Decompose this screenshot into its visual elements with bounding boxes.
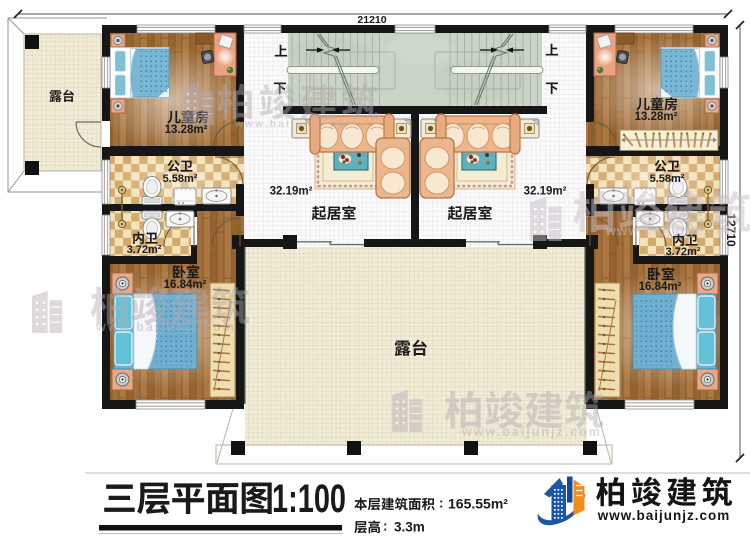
svg-text:16.84m²: 16.84m² [639,281,682,293]
svg-text:5.58m²: 5.58m² [163,173,198,185]
svg-text:www.baijunjz.com: www.baijunjz.com [234,118,358,130]
svg-text:www.baijunjz.com: www.baijunjz.com [597,508,731,523]
svg-text:5.58m²: 5.58m² [650,173,685,185]
svg-text:13.28m²: 13.28m² [635,111,678,123]
svg-text:16.84m²: 16.84m² [164,279,207,291]
svg-text:3.72m²: 3.72m² [666,246,701,258]
svg-text:3.72m²: 3.72m² [127,244,162,256]
svg-text:32.19m²: 32.19m² [524,186,567,198]
svg-text:21210: 21210 [357,14,386,26]
svg-text:165.55m²: 165.55m² [448,496,508,512]
svg-text:1:100: 1:100 [272,477,346,521]
svg-text:www.baijunjz.com: www.baijunjz.com [461,425,602,439]
svg-text:13.28m²: 13.28m² [165,124,208,136]
svg-text:www.baijunjz.com: www.baijunjz.com [95,320,236,334]
svg-text::: : [439,496,444,511]
svg-text:3.3m: 3.3m [394,520,425,535]
svg-text::: : [383,519,388,534]
svg-text:32.19m²: 32.19m² [270,186,313,198]
svg-text:www.baijunjz.com: www.baijunjz.com [605,224,738,238]
